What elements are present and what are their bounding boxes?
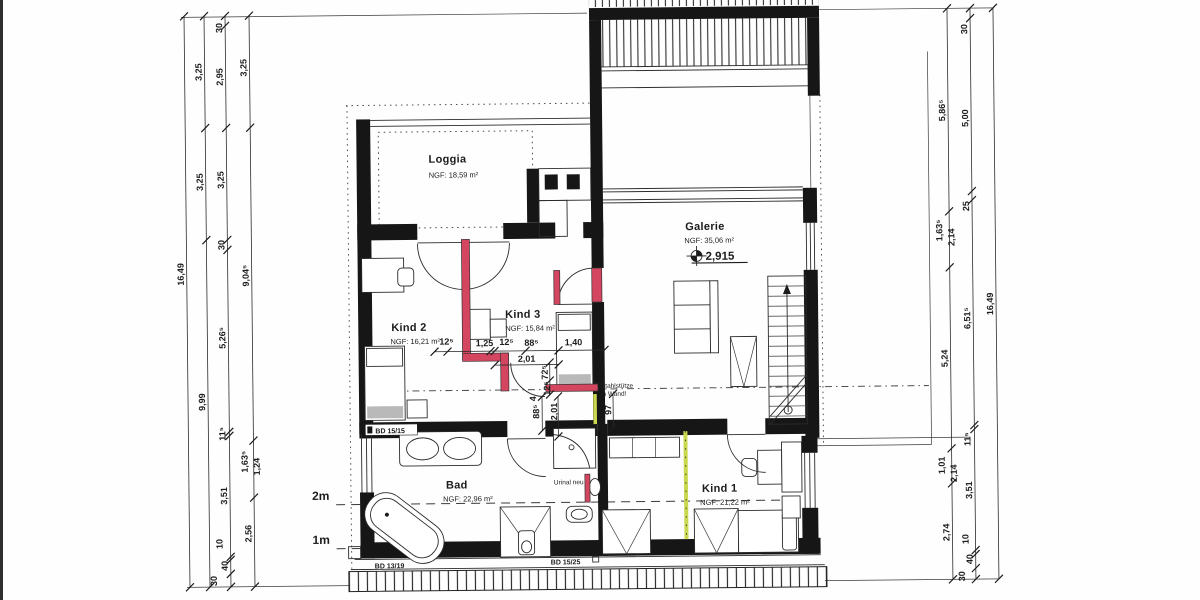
dim-label: 3,25 [238,59,248,77]
dim-label: 5,00 [960,109,970,127]
table [781,442,802,492]
room-area-bad: NGF: 22,96 m² [443,494,493,504]
room-area-loggia: NGF: 18,59 m² [429,170,479,180]
room-name-kind3: Kind 3 [505,309,541,321]
dim-label: 30 [214,23,224,33]
dim-label: 3,25 [216,171,226,189]
wardrobe [694,509,738,553]
dim-label: 72⁵ [540,365,550,379]
desk [758,450,782,484]
bad-window [361,434,372,492]
room-area-kind3: NGF: 15,84 m² [505,323,555,333]
dim-label: 2,74 [941,524,951,542]
dim-label: 2,14 [946,228,956,246]
level-value: 2,915 [705,251,735,263]
galerie-window [806,223,814,270]
dim-label: 1,01 [937,457,947,475]
dim-label: 88⁵ [524,338,538,348]
dim-label: 2,01 [549,403,559,421]
dim-label: 16,49 [176,263,186,286]
stahlstuetze-label-2: in Wand! [601,391,627,398]
room-name-galerie: Galerie [685,221,725,233]
chair [398,268,414,286]
sink [443,437,475,459]
room-area-kind2: NGF: 16,21 m² [390,337,440,347]
dim-label: 9,99 [197,393,207,411]
dim-label: 40 [965,554,975,564]
dim-label: 88⁵ [531,404,541,418]
room-name-bad: Bad [446,479,468,491]
dim-label: 10 [214,539,224,549]
stair-direction-line [787,290,788,412]
pillow [366,348,402,366]
dim-label: 12⁵ [439,337,453,347]
level-marker: 2,915 [686,245,747,266]
height-line-2m-label: 2m [312,489,329,503]
stair-up-arrow [783,284,791,294]
dim-label: 12⁵ [499,337,513,347]
pillow [558,314,590,330]
stair [768,276,808,424]
dim-label: 2,95 [215,68,225,86]
nightstand [407,400,427,418]
shelf [674,281,711,353]
scanned-floor-plan-page: 16,49 3,25 3,25 9,99 30 2,95 3,25 30 5,2… [0,0,1200,600]
bd-label-bottom-right: BD 15/25 [551,559,581,566]
room-area-kind1: NGF: 21,22 m² [700,497,750,507]
room-name-loggia: Loggia [428,153,467,165]
dim-label: 1,25 [476,338,494,348]
dim-label: 2,01 [518,354,536,364]
bd-label-bottom-left: BD 13/19 [375,563,405,570]
cabinet [782,496,800,518]
dim-label: 30 [209,576,219,586]
dim-label: 3,25 [195,173,205,191]
dim-label: 11⁵ [217,427,227,441]
dim-label: 1,24 [252,458,262,476]
dim-label: 1,40 [565,337,583,347]
kind3-door-arc [558,268,594,304]
urinal-label: Urinal neu [554,479,584,486]
dimension-labels: 16,49 3,25 3,25 9,99 30 2,95 3,25 30 5,2… [173,15,998,590]
dim-label: 5,24 [940,350,950,368]
dim-label: 3,51 [964,481,974,499]
wardrobe [602,509,650,554]
dim-label: 16,49 [985,293,995,316]
dim-label: 1,63⁵ [240,451,250,473]
cabinet [490,319,506,337]
chair [742,458,757,476]
dim-label: 1,63⁵ [934,220,944,242]
dim-label: 3,25 [194,63,204,81]
floor-plan-drawing: 16,49 3,25 3,25 9,99 30 2,95 3,25 30 5,2… [0,0,1200,600]
shower [553,428,595,468]
dim-label: 3,51 [219,487,229,505]
urinal [589,479,600,496]
furniture-kind1 [601,436,802,554]
dim-label: 97 [603,405,613,415]
dim-label: 30 [959,24,969,34]
dim-label: 25 [961,201,971,211]
height-line-1m-label: 1m [312,533,329,547]
chimney-flue [567,174,580,189]
room-name-kind2: Kind 2 [391,322,427,334]
loggia-open-boundary [378,131,533,229]
chimney-flue [545,174,558,189]
dim-label: 6,51⁵ [962,307,972,329]
dim-label: 4 [528,396,538,401]
dim-label: 11⁵ [962,432,972,446]
dim-label: 9,04⁵ [241,265,251,287]
bad-door-arc [507,439,545,477]
wardrobe [609,437,679,458]
dim-label: 12⁵ [542,381,552,395]
sink [406,438,438,460]
dim-label: 2,14 [949,464,959,482]
scan-edge-artifact [0,0,3,600]
kind1-window [805,453,816,508]
wardrobe [730,336,757,386]
dim-label: 5,26⁵ [217,327,227,349]
stahlstuetze-label-1: Stahlstütze [601,383,634,390]
furniture-galerie [674,280,757,387]
room-area-galerie: NGF: 35,06 m² [684,236,734,246]
dim-label: 10 [960,534,970,544]
room-name-kind1: Kind 1 [702,483,738,495]
shelf-side [710,281,719,353]
dim-label: 30 [216,240,226,250]
dim-label: 30 [957,571,967,581]
bd-label-top: BD 15/15 [375,428,405,435]
dim-label: 40 [220,561,230,571]
dim-label: 5,86⁵ [937,99,947,121]
roof-height-line-upper [363,386,929,392]
dim-label: 2,56 [243,525,253,543]
